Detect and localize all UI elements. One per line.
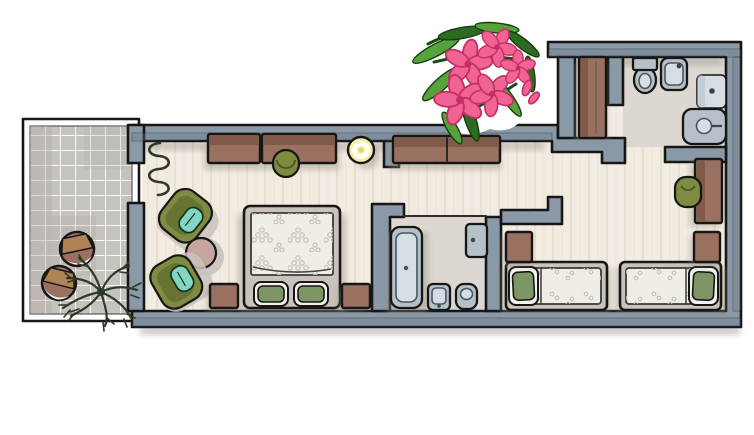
room-balcony — [23, 119, 139, 321]
single-bed — [620, 262, 721, 310]
washbasin — [466, 224, 487, 257]
floor-plan-stage: Apartment floor plan, top view, watercol… — [0, 0, 754, 435]
bed-pillow — [512, 271, 534, 300]
bed-pillow — [298, 286, 324, 302]
washbasin — [683, 109, 726, 144]
room-entrance-hall — [575, 57, 607, 142]
bathtub — [391, 227, 422, 308]
desk-chair — [675, 177, 701, 207]
toilet — [633, 58, 657, 93]
nightstand — [506, 232, 532, 262]
double-bed — [244, 206, 340, 308]
room-hallway — [389, 136, 501, 170]
ceiling-lamp — [348, 137, 374, 163]
sink — [661, 58, 687, 90]
nightstand — [342, 284, 370, 308]
floor-plan-canvas: Apartment floor plan, top view, watercol… — [0, 0, 754, 435]
toilet — [428, 284, 450, 310]
bidet — [456, 284, 477, 309]
wall-bath1-right — [486, 217, 501, 311]
nightstand — [694, 232, 720, 262]
desk-chair — [273, 150, 299, 177]
wall-bath2-partition — [608, 57, 623, 105]
wall-entrance-left — [558, 57, 575, 138]
bed-pillow — [258, 286, 284, 302]
wall-living-left-top — [128, 125, 144, 163]
nightstand — [210, 284, 238, 308]
shower — [697, 75, 726, 108]
bed-pillow — [692, 271, 714, 300]
single-bed — [506, 262, 607, 310]
